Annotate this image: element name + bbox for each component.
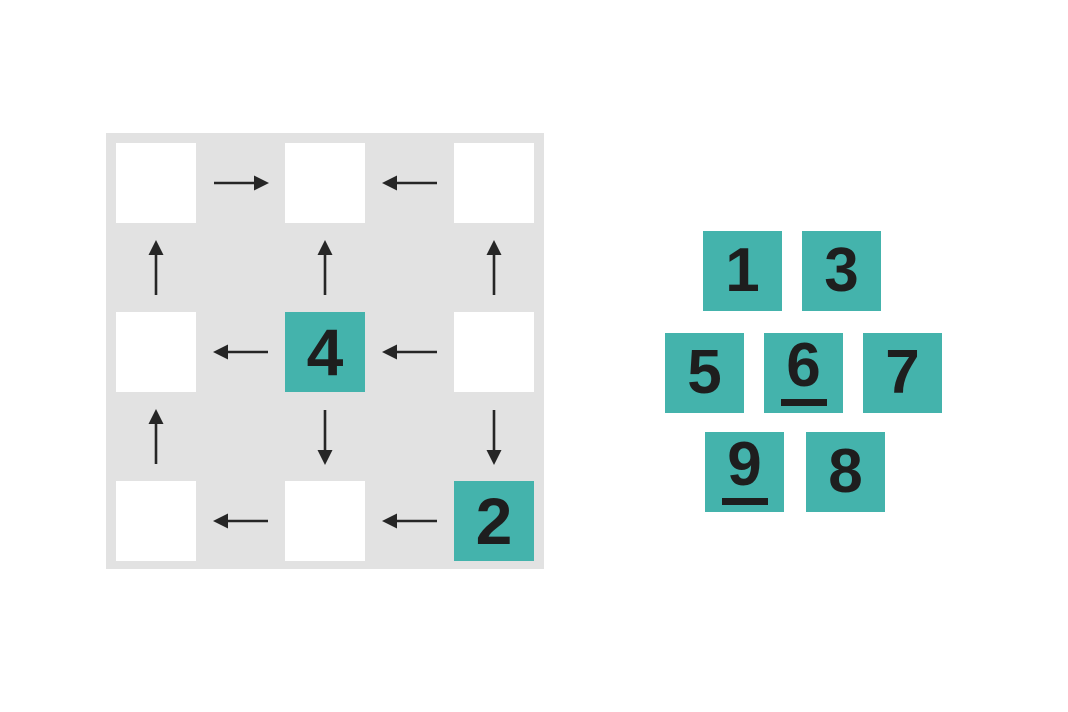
number-tile[interactable]: 6 [764,333,843,413]
number-tile[interactable]: 3 [802,231,881,311]
board-cell[interactable] [285,481,365,561]
puzzle-page: 42 1356798 [0,0,1068,712]
arrow-up-icon [316,240,334,296]
arrow-left-icon [382,343,438,361]
tile-digit: 4 [307,319,344,385]
number-tile[interactable]: 9 [705,432,784,512]
tile-tray: 1356798 [665,231,942,516]
tile-underline [722,498,768,505]
board-cell[interactable] [454,143,534,223]
tile-digit: 9 [727,434,761,496]
tile-digit: 5 [687,342,721,404]
board-cell[interactable] [116,481,196,561]
arrow-left-icon [213,512,269,530]
arrow-up-icon [485,240,503,296]
board-cell[interactable] [454,312,534,392]
number-tile[interactable]: 8 [806,432,885,512]
tile-digit: 1 [725,240,759,302]
tile-digit: 6 [786,335,820,397]
arrow-left-icon [382,174,438,192]
puzzle-board: 42 [106,133,544,569]
board-tile[interactable]: 2 [454,481,534,561]
board-cell[interactable] [116,312,196,392]
number-tile[interactable]: 7 [863,333,942,413]
arrow-down-icon [485,409,503,465]
board-cell[interactable] [116,143,196,223]
tile-digit: 8 [828,441,862,503]
arrow-left-icon [213,343,269,361]
tile-digit: 7 [885,342,919,404]
number-tile[interactable]: 5 [665,333,744,413]
tile-digit: 2 [476,488,513,554]
arrow-down-icon [316,409,334,465]
tile-underline [781,399,827,406]
arrow-right-icon [213,174,269,192]
board-cell[interactable] [285,143,365,223]
number-tile[interactable]: 1 [703,231,782,311]
tile-digit: 3 [824,240,858,302]
arrow-left-icon [382,512,438,530]
arrow-up-icon [147,409,165,465]
arrow-up-icon [147,240,165,296]
board-tile[interactable]: 4 [285,312,365,392]
